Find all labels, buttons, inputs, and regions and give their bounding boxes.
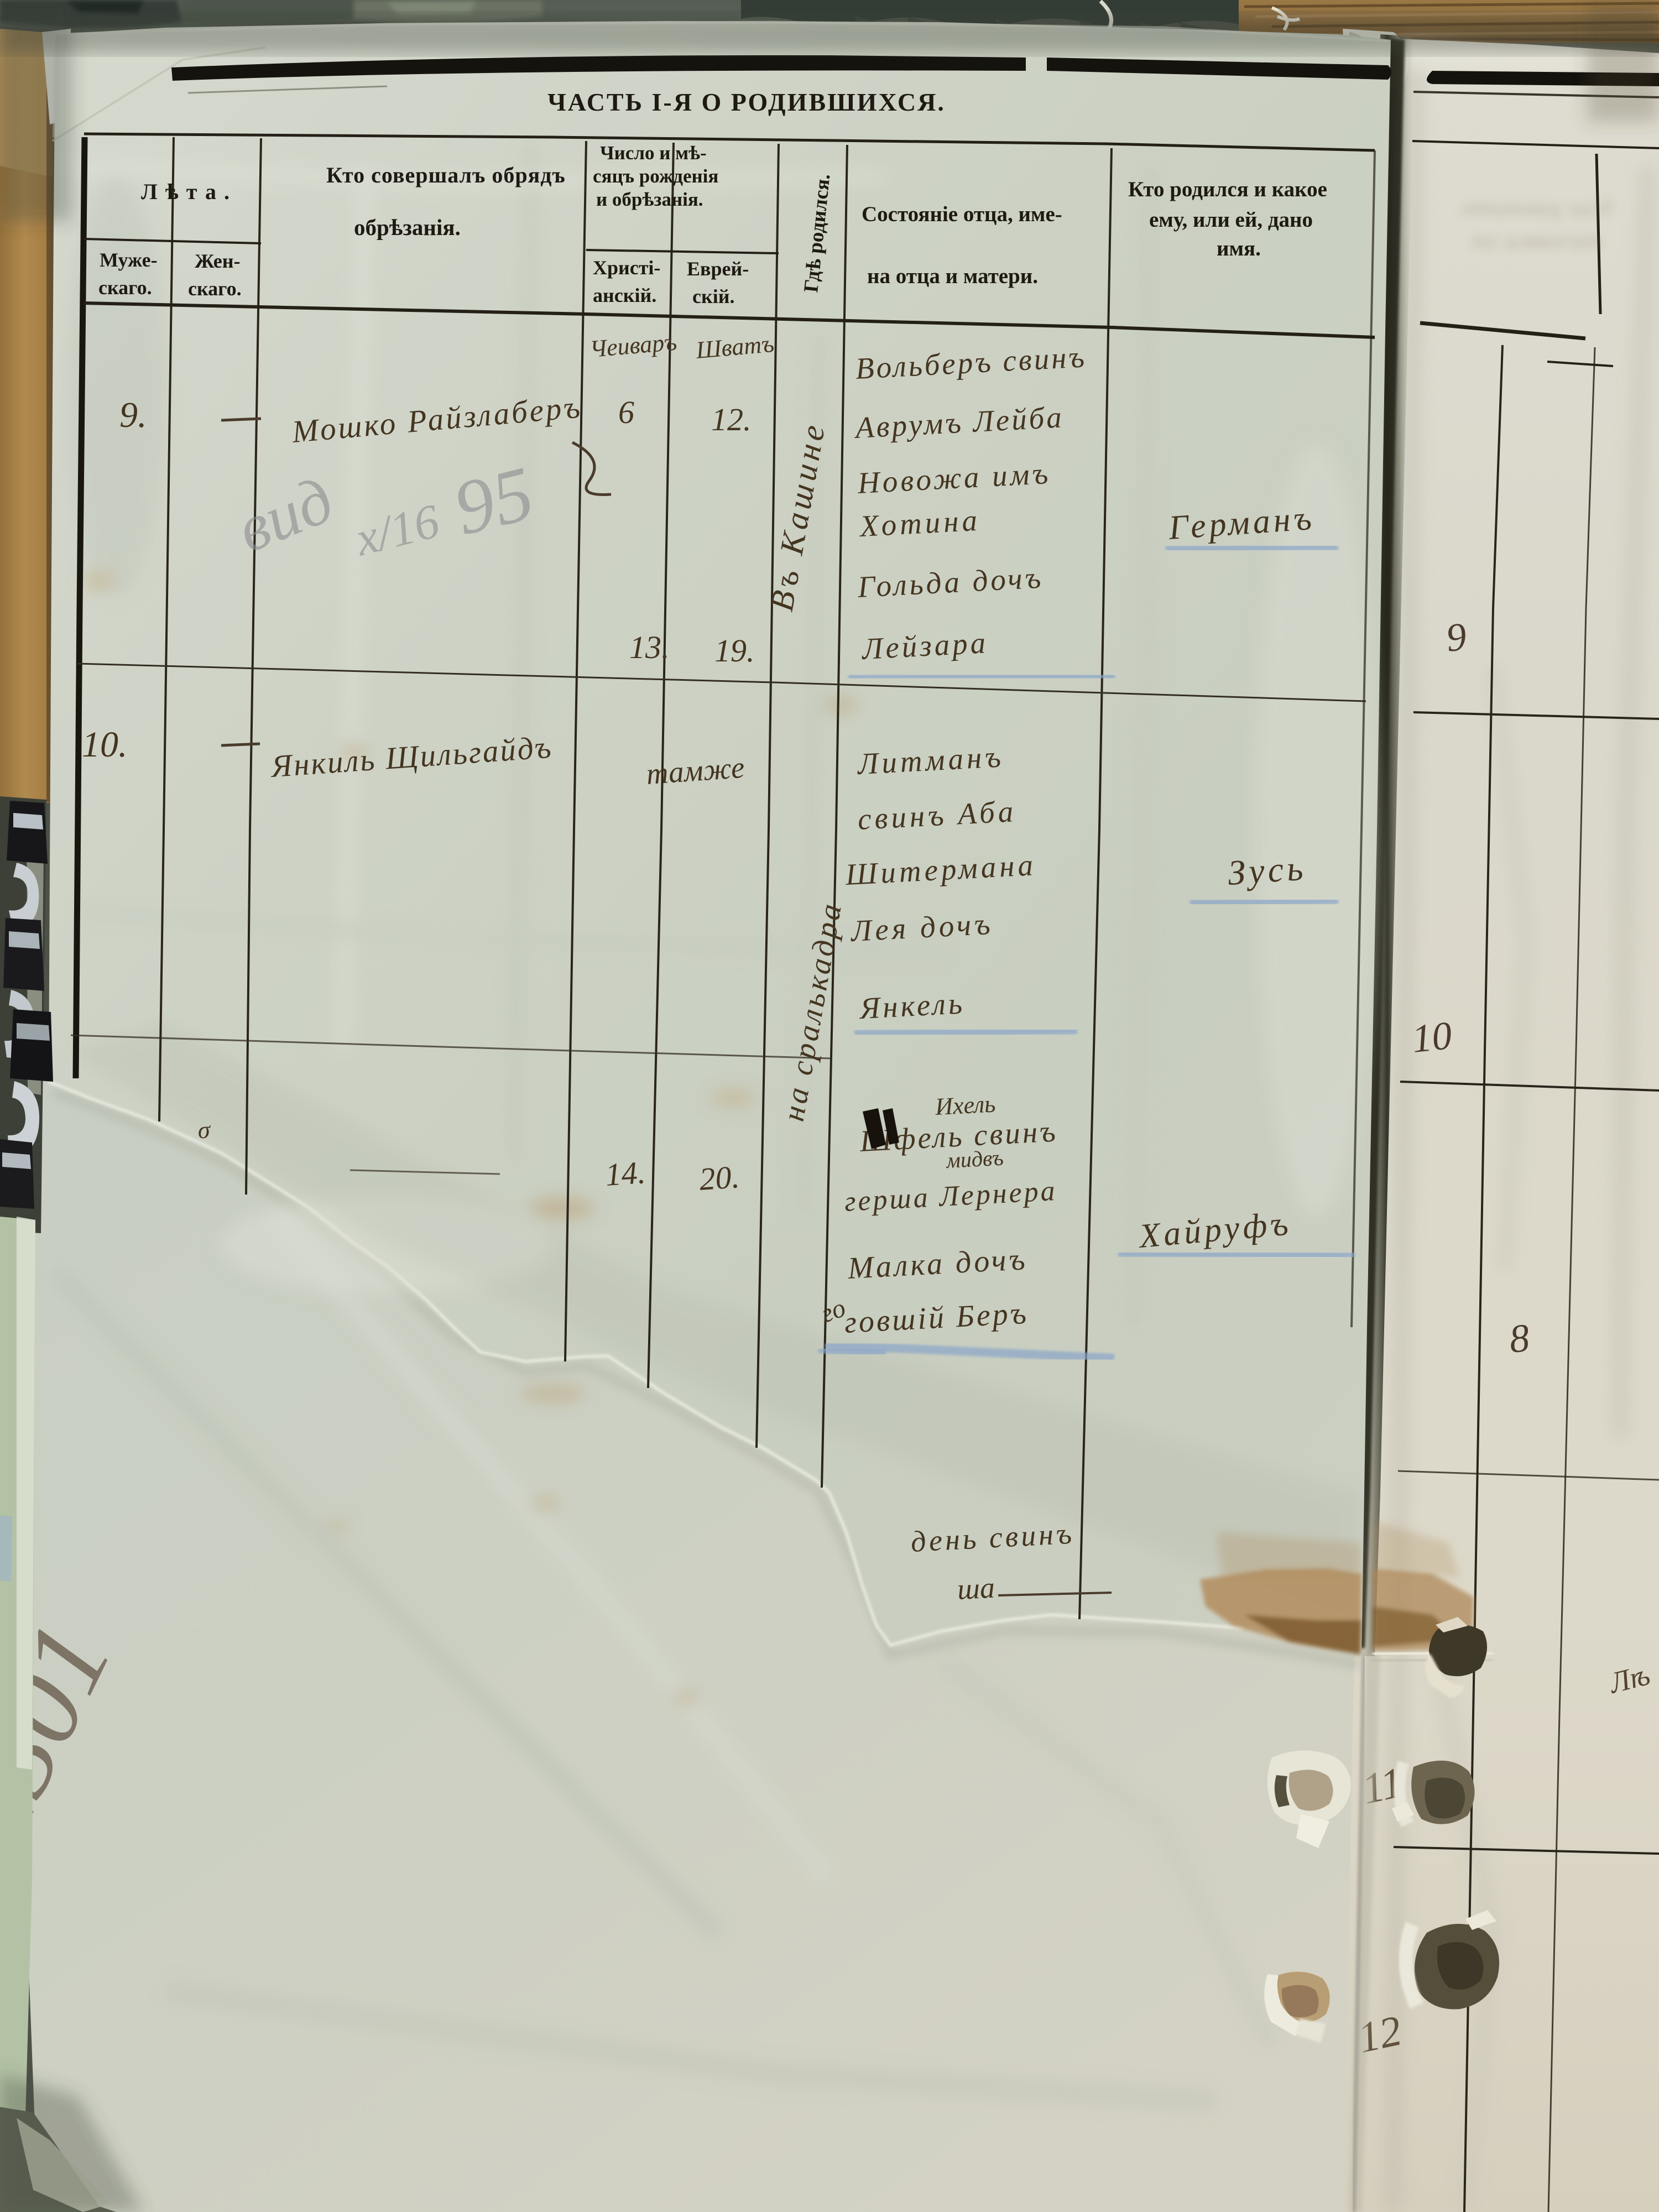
svg-text:на отца и матери.: на отца и матери.: [867, 264, 1038, 288]
svg-text:Еврей-: Еврей-: [687, 258, 749, 280]
svg-text:13.: 13.: [629, 629, 670, 665]
svg-text:Зусь: Зусь: [1227, 848, 1307, 893]
svg-text:9.: 9.: [119, 395, 147, 435]
svg-text:Кто совершалъ обрядъ: Кто совершалъ обрядъ: [326, 163, 566, 187]
svg-text:по илвюram: по илвюram: [1471, 226, 1602, 255]
svg-text:скаго.: скаго.: [188, 278, 242, 300]
svg-text:Жен-: Жен-: [195, 250, 240, 272]
svg-text:σ: σ: [198, 1117, 211, 1144]
svg-text:ЧАСТЬ І-Я О РОДИВШИХСЯ.: ЧАСТЬ І-Я О РОДИВШИХСЯ.: [547, 88, 946, 116]
svg-text:имя.: имя.: [1217, 237, 1261, 260]
svg-text:Кто родился и какое: Кто родился и какое: [1128, 178, 1327, 201]
svg-text:Число и мѣ-: Число и мѣ-: [600, 142, 707, 164]
svg-text:ему, или ей, дано: ему, или ей, дано: [1149, 208, 1313, 232]
svg-text:анскій.: анскій.: [593, 284, 656, 306]
svg-text:20.: 20.: [698, 1159, 740, 1197]
svg-text:Христі-: Христі-: [593, 257, 660, 279]
svg-text:10: 10: [1410, 1013, 1454, 1061]
svg-text:12.: 12.: [711, 401, 752, 437]
svg-text:Лейзара: Лейзара: [860, 625, 989, 666]
svg-text:Состояніе отца, име-: Состояніе отца, име-: [862, 202, 1062, 226]
svg-text:Янкель: Янкель: [858, 986, 966, 1025]
svg-text:мидвъ: мидвъ: [945, 1145, 1004, 1173]
svg-text:Лѣта.: Лѣта.: [141, 179, 237, 204]
svg-text:14.: 14.: [604, 1154, 646, 1193]
svg-text:сяцъ рожденія: сяцъ рожденія: [593, 165, 718, 187]
svg-text:19.: 19.: [714, 633, 755, 669]
svg-text:обрѣзанія.: обрѣзанія.: [354, 215, 461, 240]
svg-text:и обрѣзанія.: и обрѣзанія.: [596, 189, 703, 210]
svg-text:скаго.: скаго.: [98, 276, 152, 299]
svg-text:тамже: тамже: [645, 750, 746, 791]
svg-text:Муже-: Муже-: [100, 249, 158, 271]
svg-text:скій.: скій.: [692, 285, 734, 307]
svg-text:Хотина: Хотина: [858, 503, 981, 543]
svg-text:Ихель: Ихель: [934, 1090, 996, 1120]
svg-text:лтиновщ шгд: лтиновщ шгд: [1458, 192, 1613, 222]
svg-text:ша: ша: [956, 1571, 995, 1606]
svg-text:10.: 10.: [82, 724, 128, 765]
svg-text:6: 6: [618, 394, 634, 430]
